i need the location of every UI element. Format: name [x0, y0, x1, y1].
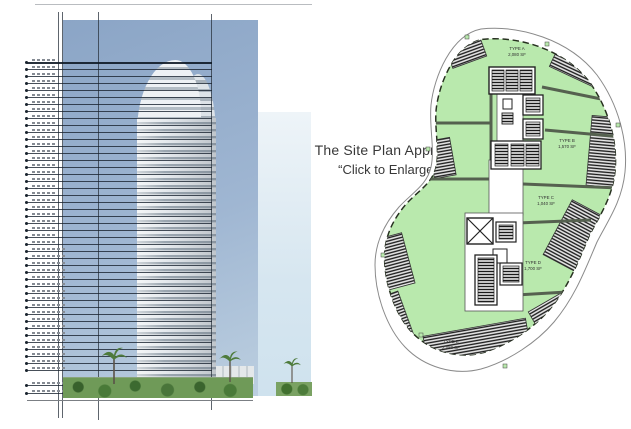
floor-line	[27, 265, 212, 266]
unit-label-type-a: TYPE A	[509, 46, 524, 51]
floor-line	[27, 160, 212, 161]
palm-tree-icon	[283, 357, 301, 383]
ground-line	[27, 400, 253, 401]
floor-line	[27, 202, 212, 203]
floor-line	[27, 342, 212, 343]
floor-line	[27, 251, 212, 252]
floor-line	[27, 90, 212, 91]
floor-line	[27, 139, 212, 140]
unit-label-type-b: TYPE B	[559, 138, 575, 143]
unit-area-type-c: 1,040 SF	[537, 201, 555, 206]
floor-line	[27, 286, 212, 287]
floor-line	[27, 174, 212, 175]
unit-area-type-d: 1,700 SF	[524, 266, 542, 271]
sky-light-band	[258, 112, 311, 396]
unit-label-type-c: TYPE C	[538, 195, 554, 200]
floor-line	[27, 223, 212, 224]
floor-line	[27, 76, 212, 77]
floor-line	[27, 69, 212, 70]
floor-line	[27, 272, 212, 273]
floor-line	[27, 146, 212, 147]
unit-area-type-a: 2,080 SF	[508, 52, 526, 57]
page: The Site Plan Approval “Click to Enlarge…	[0, 0, 631, 429]
floor-line	[27, 195, 212, 196]
landscape-patch	[276, 382, 312, 396]
floor-line	[27, 335, 212, 336]
floor-line	[27, 237, 212, 238]
floor-line	[27, 132, 212, 133]
palm-tree-icon	[101, 346, 127, 384]
unit-label-type-e: TYPE E	[443, 339, 459, 344]
floor-line	[27, 216, 212, 217]
unit-area-type-e: 2,080 SF	[442, 345, 460, 350]
unit-label-type-d: TYPE D	[525, 260, 541, 265]
floor-line	[27, 307, 212, 308]
unit-area-type-b: 1,570 SF	[558, 144, 576, 149]
floor-line	[27, 181, 212, 182]
floor-line	[27, 230, 212, 231]
floor-line	[27, 111, 212, 112]
floor-line	[27, 244, 212, 245]
floor-line	[27, 314, 212, 315]
palm-tree-icon	[219, 350, 241, 382]
floor-line	[27, 62, 212, 64]
floor-line	[27, 167, 212, 168]
building-elevation-image[interactable]	[0, 0, 320, 429]
floor-line	[27, 104, 212, 105]
floor-line	[27, 328, 212, 329]
site-plan-image[interactable]: TYPE A 2,080 SF TYPE B 1,570 SF TYPE C 1…	[369, 27, 628, 384]
floor-line	[27, 153, 212, 154]
floor-line	[27, 279, 212, 280]
floor-line	[27, 97, 212, 98]
floor-line	[27, 83, 212, 84]
floor-line	[27, 293, 212, 294]
floor-line	[27, 258, 212, 259]
floor-line	[27, 125, 212, 126]
floor-line	[27, 118, 212, 119]
floor-line	[27, 209, 212, 210]
floor-line	[27, 188, 212, 189]
floor-line	[27, 300, 212, 301]
floor-line	[27, 321, 212, 322]
